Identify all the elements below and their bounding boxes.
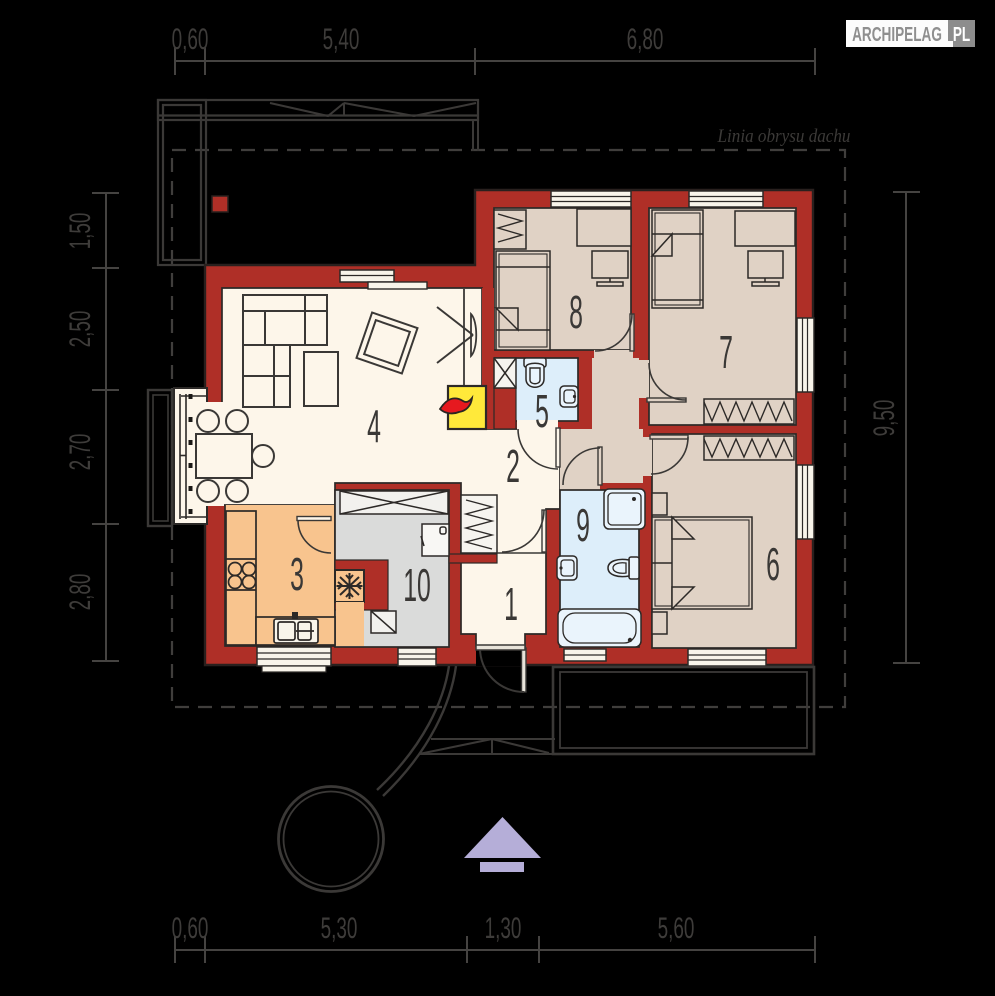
svg-text:3: 3 <box>290 549 304 600</box>
svg-text:5: 5 <box>535 386 549 437</box>
svg-text:1,50: 1,50 <box>64 213 98 250</box>
svg-text:9: 9 <box>576 500 590 551</box>
svg-text:2,50: 2,50 <box>64 311 98 348</box>
svg-text:2,70: 2,70 <box>64 434 98 471</box>
svg-text:9,50: 9,50 <box>868 400 902 437</box>
svg-text:4: 4 <box>367 401 381 452</box>
svg-text:2: 2 <box>506 441 520 492</box>
svg-text:5,60: 5,60 <box>658 912 695 946</box>
svg-text:1: 1 <box>504 579 518 630</box>
svg-text:PL: PL <box>953 23 970 45</box>
svg-text:7: 7 <box>719 327 733 378</box>
svg-text:6,80: 6,80 <box>627 23 664 57</box>
svg-text:6: 6 <box>766 539 780 590</box>
svg-text:10: 10 <box>403 560 431 611</box>
svg-text:0,60: 0,60 <box>172 23 209 57</box>
svg-text:5,30: 5,30 <box>321 912 358 946</box>
svg-text:8: 8 <box>569 287 583 338</box>
svg-text:Linia obrysu dachu: Linia obrysu dachu <box>717 125 851 146</box>
svg-text:ARCHIPELAG: ARCHIPELAG <box>852 23 942 45</box>
svg-text:5,40: 5,40 <box>323 23 360 57</box>
svg-text:1,30: 1,30 <box>485 912 522 946</box>
svg-text:0,60: 0,60 <box>172 912 209 946</box>
svg-text:2,80: 2,80 <box>64 574 98 611</box>
